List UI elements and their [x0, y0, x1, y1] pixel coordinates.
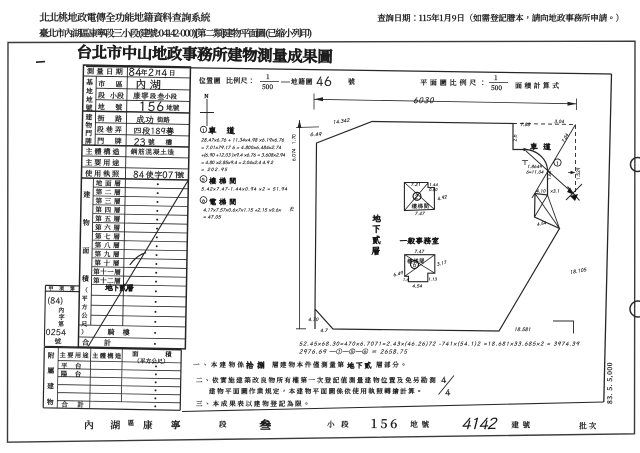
svg-text:地下貳: 地下貳: [347, 361, 373, 371]
svg-text:屬: 屬: [47, 365, 54, 375]
svg-text:牌: 牌: [85, 136, 93, 146]
svg-text:段: 段: [117, 91, 124, 101]
svg-text:+(6.90 +12.03 )×9.4 ×6.76 = 3.: +(6.90 +12.03 )×9.4 ×6.76 = 3.608×2.94: [201, 153, 285, 159]
svg-text:車道: 車道: [208, 126, 245, 137]
svg-text:康寧: 康寧: [142, 418, 199, 432]
svg-text:地號: 地號: [166, 102, 180, 112]
svg-text:號: 號: [54, 337, 61, 346]
svg-text:2.6: 2.6: [513, 134, 519, 142]
svg-text:日: 日: [169, 68, 176, 77]
svg-text:6=11.04: 6=11.04: [526, 170, 544, 176]
svg-text:計: 計: [77, 399, 84, 409]
svg-text:7.04: 7.04: [560, 132, 570, 143]
svg-text:樓梯間: 樓梯間: [208, 177, 239, 187]
svg-text:14.342: 14.342: [332, 118, 350, 126]
svg-text:車道: 車道: [529, 143, 556, 153]
svg-text:6030: 6030: [413, 96, 435, 106]
svg-text:= 7.01×79.17 6 = 4.800×6.484×2: = 7.01×79.17 6 = 4.800×6.484×2.74: [201, 145, 281, 151]
svg-text:地下貳層: 地下貳層: [104, 283, 134, 294]
svg-text:建: 建: [47, 380, 54, 390]
svg-text:76: 76: [290, 206, 296, 212]
svg-text:4: 4: [445, 386, 451, 399]
svg-text:1.529: 1.529: [576, 167, 582, 180]
svg-text:層建物本件僅測量第: 層建物本件僅測量第: [272, 359, 344, 369]
svg-text:月: 月: [154, 68, 162, 77]
svg-text:段: 段: [219, 419, 227, 430]
svg-text:1: 1: [266, 72, 270, 81]
svg-text:7.47: 7.47: [414, 249, 425, 255]
svg-text:陽: 陽: [61, 369, 68, 378]
svg-text:台: 台: [75, 369, 82, 378]
svg-text:N: N: [203, 93, 208, 100]
svg-text:1.66: 1.66: [547, 170, 553, 180]
svg-text:樓: 樓: [166, 137, 173, 147]
svg-text:巷: 巷: [106, 125, 113, 135]
svg-text:街路: 街路: [157, 115, 171, 124]
svg-text:平面圖比例尺：: 平面圖比例尺：: [420, 77, 486, 87]
svg-text:= 202.95: = 202.95: [201, 167, 228, 173]
svg-text:段: 段: [98, 91, 105, 101]
svg-text:鋼筋混凝土造: 鋼筋混凝土造: [130, 148, 174, 158]
svg-text:物: 物: [47, 396, 54, 406]
svg-text:156: 156: [139, 98, 166, 115]
svg-text:市: 市: [98, 79, 105, 89]
svg-text:附: 附: [48, 350, 55, 360]
svg-text:弄: 弄: [167, 126, 174, 135]
svg-text:地: 地: [98, 102, 105, 112]
svg-text:號: 號: [115, 103, 123, 113]
svg-text:0.80: 0.80: [429, 188, 438, 193]
svg-text:號: 號: [177, 171, 185, 181]
svg-text:面: 面: [82, 246, 89, 256]
svg-text:500: 500: [262, 82, 273, 91]
svg-text:7.88: 7.88: [520, 122, 531, 128]
svg-text:500: 500: [491, 83, 502, 92]
svg-text:主體構造: 主體構造: [85, 147, 121, 158]
svg-text:18.105: 18.105: [569, 267, 588, 276]
svg-text:小段: 小段: [326, 419, 355, 430]
svg-text:物: 物: [83, 218, 90, 228]
svg-text:合: 合: [81, 338, 90, 348]
svg-text:1: 1: [494, 73, 498, 82]
svg-text:主要用途: 主要用途: [85, 158, 121, 169]
svg-text:區: 區: [115, 80, 123, 90]
svg-text:街: 街: [97, 114, 104, 124]
svg-text:4.54: 4.54: [536, 220, 547, 228]
svg-text:4142: 4142: [461, 412, 498, 434]
svg-text:台北市中山地政事務所建物測量成果圖: 台北市中山地政事務所建物測量成果圖: [77, 40, 333, 67]
svg-text:84: 84: [133, 168, 145, 181]
svg-text:一、本建物係: 一、本建物係: [193, 359, 244, 369]
svg-text:18.581: 18.581: [514, 327, 531, 333]
svg-text:= 47.05: = 47.05: [203, 215, 222, 221]
svg-text:樓梯間: 樓梯間: [407, 257, 425, 265]
svg-text:= 4.80 ×2.85×9.4 = 2.04×2.4 4.: = 4.80 ×2.85×9.4 = 2.04×2.4 4.9 2: [201, 160, 274, 166]
svg-text:建: 建: [83, 190, 90, 200]
svg-text:4.92: 4.92: [437, 194, 449, 203]
svg-text:1: 1: [202, 126, 205, 134]
svg-text:內湖: 內湖: [135, 77, 164, 93]
svg-text:層: 層: [372, 245, 381, 257]
svg-text:3.04: 3.04: [554, 119, 564, 125]
svg-text:積: 積: [82, 274, 89, 284]
svg-text:7.47: 7.47: [415, 211, 426, 217]
svg-text:面積計算式: 面積計算式: [515, 80, 561, 90]
svg-text:46: 46: [316, 73, 332, 90]
svg-text:牌: 牌: [115, 137, 123, 147]
svg-text:1.6: 1.6: [403, 278, 410, 283]
svg-text:×3.1: ×3.1: [550, 189, 560, 195]
svg-text:二、依實施建築改良物所有權第一次登記值測量建物位置及免另勘測: 二、依實施建築改良物所有權第一次登記值測量建物位置及免另勘測: [196, 375, 436, 385]
svg-text:4.7: 4.7: [320, 328, 329, 334]
svg-text:路: 路: [114, 114, 122, 124]
svg-text:位置圖: 位置圖: [199, 75, 221, 85]
svg-text:臺北市內湖區康寧段三小段(建號:04142-000)[第二類: 臺北市內湖區康寧段三小段(建號:04142-000)[第二類]建物平面圖(已縮小…: [39, 26, 312, 40]
svg-text:5.42×7.47-1.44×0.94 ×2 = 51.94: 5.42×7.47-1.44×0.94 ×2 = 51.94: [201, 187, 287, 193]
svg-text:1.13: 1.13: [428, 278, 437, 283]
svg-text:4: 4: [441, 373, 447, 386]
svg-text:主要用途: 主要用途: [60, 350, 91, 360]
svg-text:6: 6: [202, 196, 205, 204]
svg-text:地號: 地號: [410, 419, 433, 430]
svg-text:比例尺：: 比例尺：: [226, 75, 255, 85]
svg-text:4.54: 4.54: [412, 284, 422, 290]
svg-text:三、本成果表以建物登記為限。: 三、本成果表以建物登記為限。: [196, 398, 310, 408]
svg-text:區: 區: [128, 418, 134, 427]
svg-text:拾捌: 拾捌: [245, 361, 268, 371]
svg-text:4.17×7.57×0.6×7×1.15 +2.15 ×0.: 4.17×7.57×0.6×7×1.15 +2.15 ×0.6×: [203, 208, 281, 214]
svg-text:使字: 使字: [144, 170, 163, 181]
svg-text:段: 段: [97, 125, 104, 135]
svg-text:門: 門: [97, 136, 104, 146]
svg-text:6.49: 6.49: [310, 132, 322, 138]
svg-text:成功: 成功: [136, 113, 154, 125]
svg-text:1: 1: [556, 159, 559, 167]
svg-text:4.10: 4.10: [536, 189, 546, 195]
svg-text:合: 合: [61, 399, 68, 409]
svg-text:）: ）: [81, 327, 87, 336]
svg-text:地籍圖: 地籍圖: [291, 76, 313, 86]
svg-text:52.45×68.30=470×6.7071=2.43×(4: 52.45×68.30=470×6.7071=2.43×(46.26)72 -7…: [299, 340, 580, 348]
svg-text:建號: 建號: [511, 420, 534, 431]
svg-text:叁: 叁: [260, 417, 272, 433]
svg-text:樓梯間: 樓梯間: [412, 202, 430, 210]
svg-text:號: 號: [147, 136, 155, 146]
svg-text:2976.69 ―①―⑤―⑥ ＝ 2658.75: 2976.69 ―①―⑤―⑥ ＝ 2658.75: [299, 348, 408, 356]
svg-text:建物平面圖作業規定，本建物平面圖係依使用執照轉繪計算。: 建物平面圖作業規定，本建物平面圖係依使用執照轉繪計算。: [208, 386, 423, 396]
svg-text:一般事務室: 一般事務室: [400, 237, 440, 247]
svg-text:計: 計: [104, 338, 112, 348]
svg-text:查詢日期：115年1月9日（如需登記謄本，請向地政事務所申請: 查詢日期：115年1月9日（如需登記謄本，請向地政事務所申請。）: [377, 12, 624, 24]
svg-text:主體構造: 主體構造: [92, 351, 123, 361]
svg-text:28.47×6.76 + 11.34×4.98 ×6.19×: 28.47×6.76 + 11.34×4.98 ×6.19×6.76: [201, 138, 284, 144]
svg-text:弄: 弄: [115, 125, 122, 135]
svg-text:號: 號: [348, 76, 355, 86]
svg-text:7.21: 7.21: [411, 182, 421, 188]
svg-text:3.17: 3.17: [436, 259, 448, 268]
svg-text:甲項第: 甲項第: [48, 285, 81, 293]
svg-text:156: 156: [371, 414, 401, 432]
svg-text:北北桃地政電傳全功能地籍資料查詢系統: 北北桃地政電傳全功能地籍資料查詢系統: [39, 9, 210, 24]
svg-text:6.074: 6.074: [292, 148, 298, 161]
svg-text:1.70: 1.70: [292, 134, 298, 144]
svg-text:電梯間: 電梯間: [209, 198, 239, 208]
svg-text:批次: 批次: [579, 421, 598, 432]
svg-text:騎樓: 騎樓: [107, 327, 138, 338]
svg-text:層部分。: 層部分。: [376, 359, 407, 369]
svg-text:23: 23: [133, 135, 145, 148]
svg-text:小段: 小段: [164, 91, 177, 100]
svg-text:83. 5. 5,000: 83. 5. 5,000: [604, 362, 614, 404]
svg-text:2: 2: [414, 193, 419, 201]
svg-text:5: 5: [202, 175, 205, 183]
svg-text:（平方公尺）: （平方公尺）: [134, 357, 169, 366]
svg-text:4.70: 4.70: [308, 317, 319, 323]
